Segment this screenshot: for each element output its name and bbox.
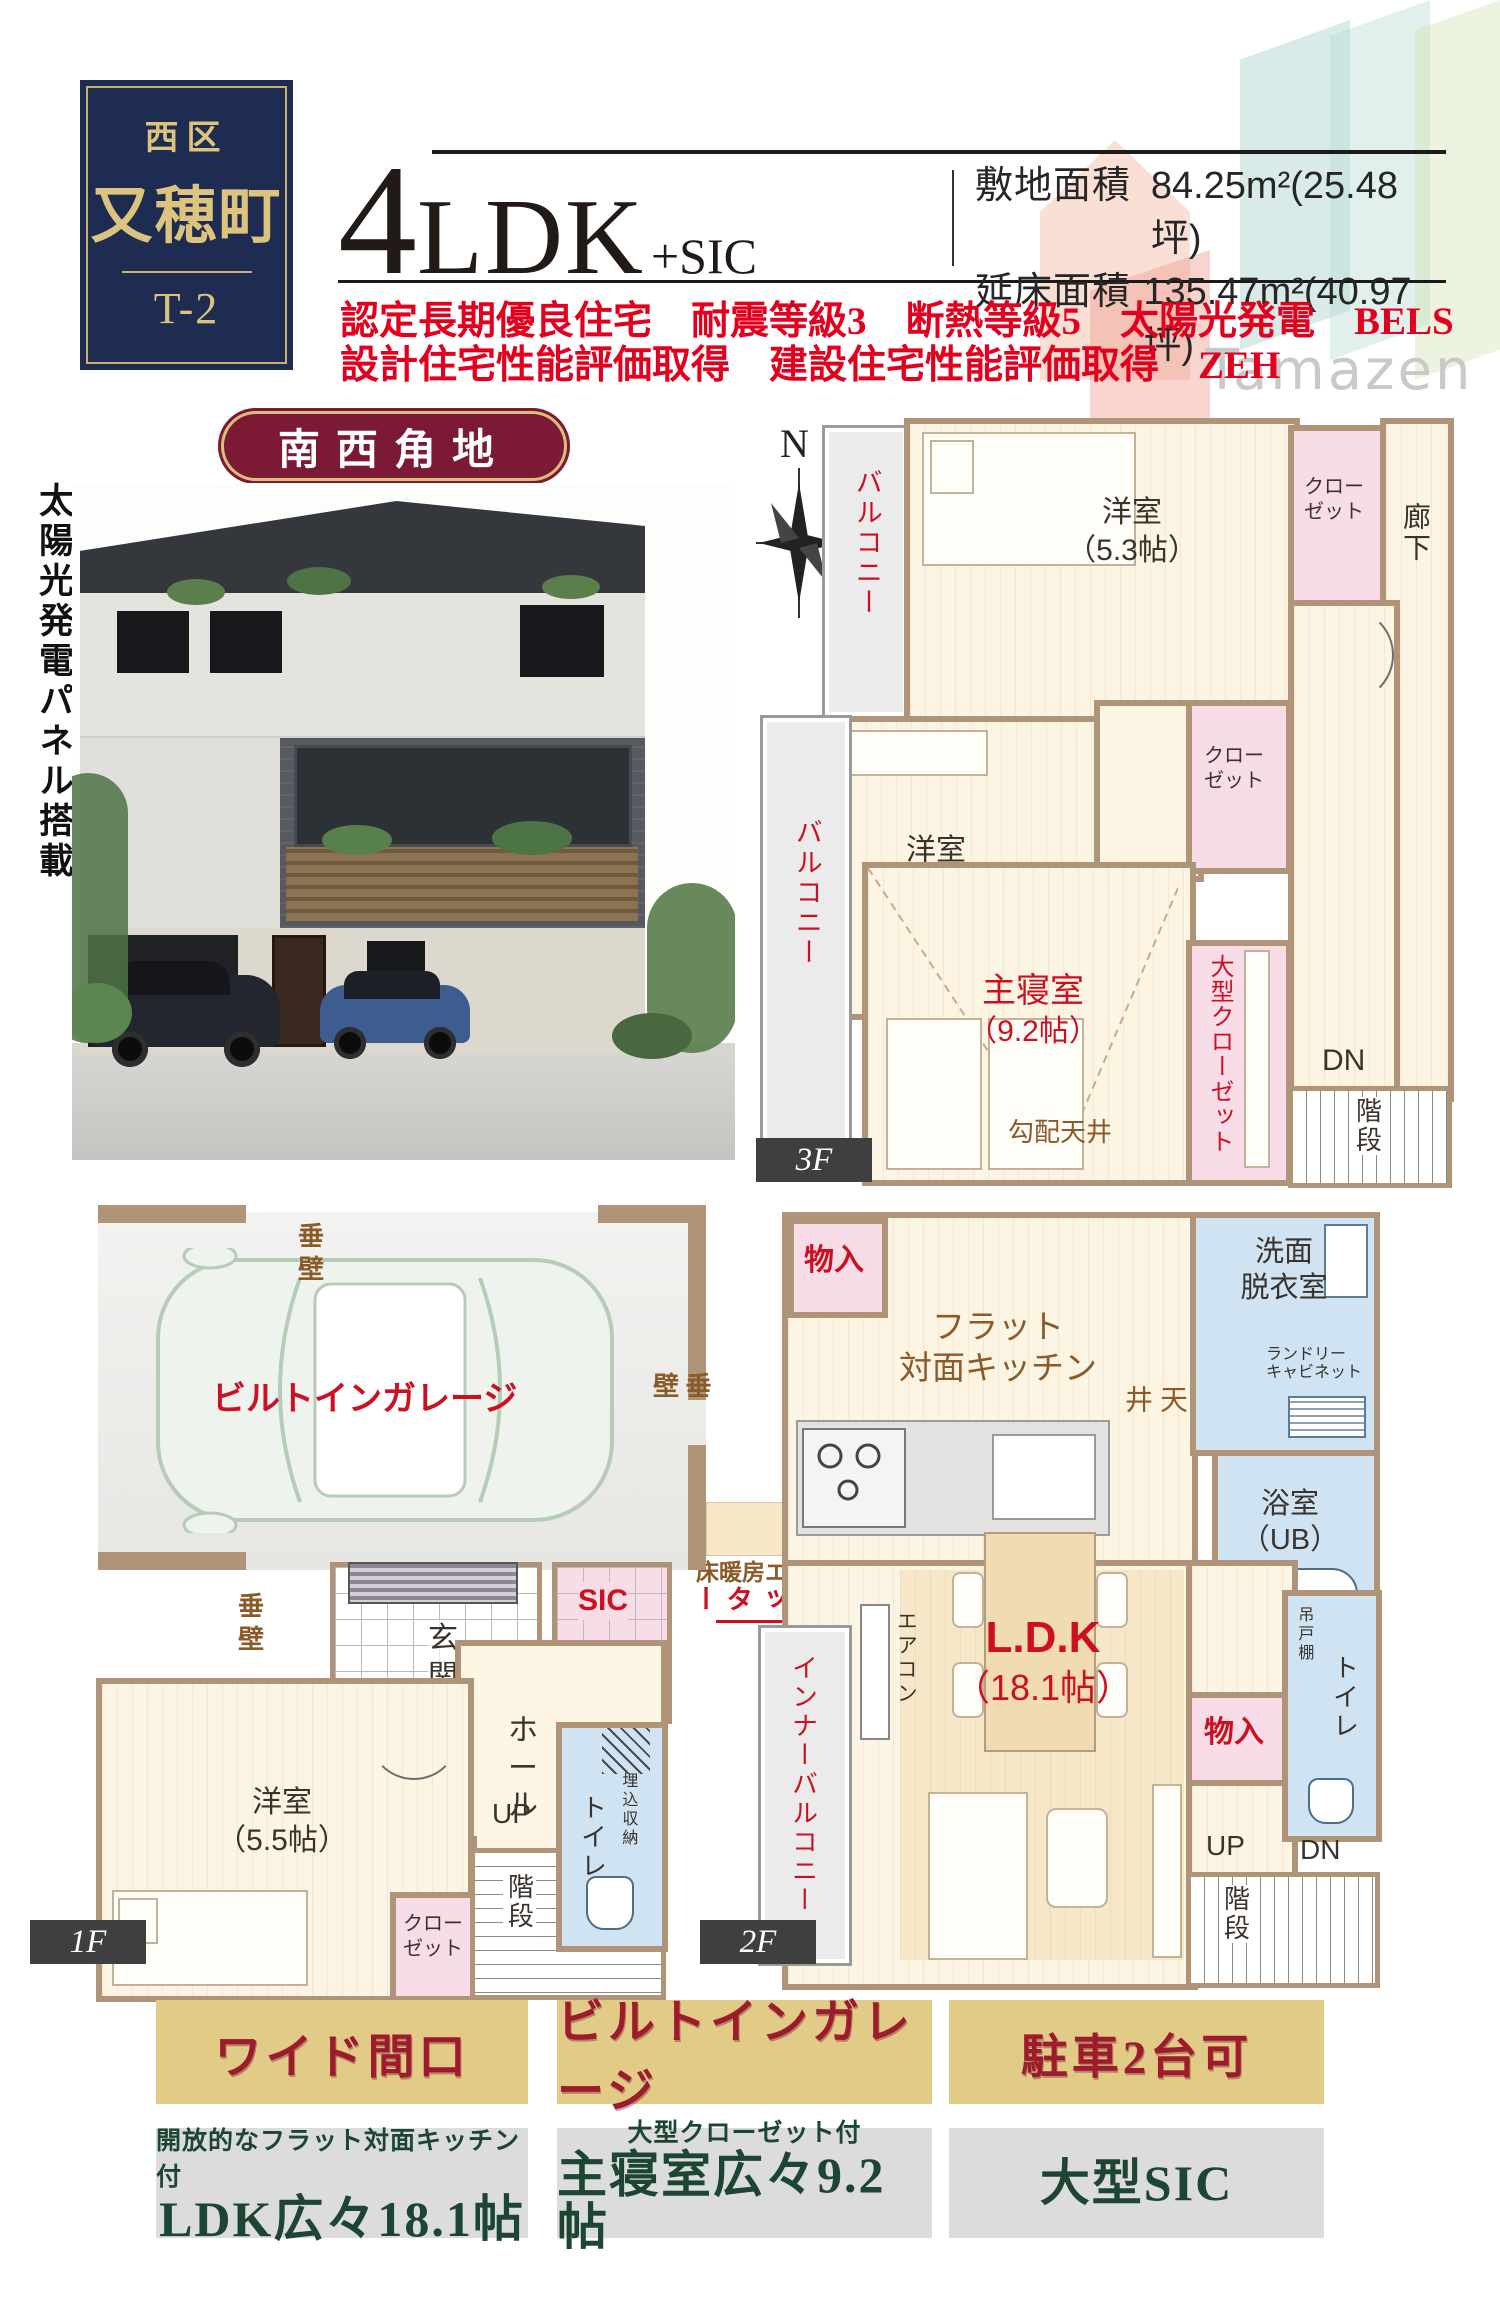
- highlight-1-main: LDK広々18.1帖: [159, 2193, 525, 2246]
- feature-badge-1: ワイド間口: [156, 2000, 528, 2104]
- f3-closet-2-label: クロー ゼット: [1200, 744, 1268, 794]
- f1-room-name: 洋室: [182, 1784, 382, 1822]
- f1-room-label: 洋室 （5.5帖）: [182, 1784, 382, 1859]
- f2-bath-l1: 浴室: [1240, 1486, 1340, 1522]
- balcony-plant-2: [492, 821, 572, 855]
- house-render: [72, 483, 735, 1160]
- f1-room-size: （5.5帖）: [182, 1822, 382, 1860]
- highlight-2-main: 主寝室広々9.2帖: [557, 2149, 932, 2254]
- f3-master-size: （9.2帖）: [928, 1013, 1138, 1051]
- floor2-tag-text: 2F: [740, 1924, 777, 1961]
- f2-kitchen-label: フラット 対面キッチン: [878, 1306, 1118, 1389]
- f1-closet-l2: ゼット: [402, 1937, 464, 1962]
- f1-built-in-l2: 収納: [619, 1810, 636, 1848]
- f3-room-5-3: 洋室 （5.3帖）: [904, 418, 1300, 728]
- f3-closet-2-l2: ゼット: [1200, 769, 1268, 794]
- attic-window-1: [117, 611, 189, 673]
- highlight-1-sub: 開放的なフラット対面キッチン付: [156, 2121, 528, 2193]
- f3-dn-label: DN: [1322, 1042, 1365, 1080]
- f2-laundry-cabinet: [1288, 1396, 1366, 1438]
- f3-big-closet: 大型クローゼット: [1186, 940, 1292, 1186]
- f1-stairs-label: 階段: [503, 1873, 536, 1931]
- f1-garage-label: ビルトインガレージ: [212, 1378, 517, 1421]
- layout-title: 4LDK+SIC: [338, 142, 757, 300]
- f1-toilet-room: トイレ 埋込収納: [556, 1722, 668, 1952]
- f3-door-arc: [1300, 608, 1394, 702]
- features-line-2: 設計住宅性能評価取得 建設住宅性能評価取得 ZEH: [340, 334, 1450, 390]
- feature-badge-3: 駐車2台可: [949, 2000, 1324, 2104]
- f2-hanging-shelf-label: 吊戸棚: [1294, 1606, 1312, 1663]
- f2-bath-l2: （UB）: [1240, 1522, 1340, 1558]
- highlight-box-3: 大型SIC: [949, 2128, 1324, 2238]
- f3-room-5-3-size: （5.3帖）: [1032, 532, 1232, 570]
- f3-stairs-label: 階段: [1351, 1097, 1384, 1155]
- f1-entry-mat: [348, 1562, 518, 1604]
- f1-wall-right: [688, 1205, 706, 1400]
- f1-up-label: UP: [492, 1796, 531, 1831]
- floor2-tag: 2F: [700, 1920, 816, 1964]
- f3-closet-1: クロー ゼット: [1288, 425, 1392, 612]
- highlight-3-main: 大型SIC: [1040, 2157, 1233, 2210]
- f2-washroom-l1: 洗面: [1214, 1234, 1354, 1270]
- f3-closet-1-l1: クロー: [1300, 475, 1368, 500]
- balcony-plant-1: [322, 825, 392, 855]
- f2-toilet-room: 吊戸棚 トイレ: [1282, 1590, 1382, 1842]
- site-area-row: 敷地面積 84.25m²(25.48坪): [975, 160, 1445, 266]
- f3-hallway-label: 廊下: [1398, 502, 1433, 564]
- f1-wall-top-left: [98, 1205, 246, 1223]
- f2-washroom-label: 洗面 脱衣室: [1214, 1234, 1354, 1307]
- f1-tarekabe-right: 垂壁: [648, 1372, 713, 1401]
- bush-right: [612, 1013, 692, 1059]
- site-area-label: 敷地面積: [975, 160, 1151, 266]
- f1-built-in-label: 埋込収納: [618, 1772, 636, 1848]
- feature-badge-2: ビルトインガレージ: [557, 2000, 932, 2104]
- f1-wall-mid-left: [98, 1552, 246, 1570]
- f2-tv-board: [1152, 1784, 1182, 1958]
- floor1-tag-text: 1F: [70, 1924, 107, 1961]
- site-area-value: 84.25m²(25.48坪): [1151, 160, 1445, 266]
- f1-toilet-icon: [586, 1876, 634, 1930]
- car-mini-wheel-1: [334, 1027, 366, 1059]
- f3-big-closet-label: 大型クローゼット: [1204, 954, 1234, 1154]
- f3-master-bedroom: 主寝室 （9.2帖） 勾配天井: [862, 862, 1196, 1186]
- f1-hatch-corner: [602, 1728, 650, 1774]
- f1-tarekabe-top: 垂壁: [298, 1220, 324, 1285]
- highlight-box-1: 開放的なフラット対面キッチン付 LDK広々18.1帖: [156, 2128, 528, 2238]
- f3-master-name: 主寝室: [928, 970, 1138, 1013]
- location-plate: 西区 又穂町 T-2: [80, 80, 293, 370]
- f2-up-label: UP: [1206, 1828, 1245, 1863]
- f3-closet-1-label: クロー ゼット: [1300, 475, 1368, 525]
- f3-room-5-3-label: 洋室 （5.3帖）: [1032, 494, 1232, 569]
- f2-sofa: [928, 1792, 1028, 1960]
- car-suv-wheel-2: [224, 1031, 260, 1067]
- f3-balcony-lower-label: バルコニー: [789, 818, 823, 968]
- f2-storage-top: 物入: [788, 1218, 888, 1318]
- f3-closet-2: クロー ゼット: [1186, 700, 1292, 874]
- car-suv-cabin: [120, 961, 230, 995]
- f1-tarekabe-bottom: 垂壁: [238, 1590, 264, 1655]
- f1-built-in-l1: 埋込: [619, 1772, 636, 1810]
- f3-stairs: 階段: [1288, 1086, 1452, 1188]
- f2-washroom-l2: 脱衣室: [1214, 1270, 1354, 1306]
- f2-stove-burners: [810, 1436, 894, 1516]
- f1-sic-label: SIC: [578, 1582, 628, 1620]
- f2-stairs: 階段: [1186, 1872, 1380, 1988]
- f2-toilet-icon: [1308, 1778, 1354, 1824]
- floor3-tag: 3F: [756, 1138, 872, 1182]
- f3-bed-pillow: [930, 440, 974, 494]
- highlight-2-sub: 大型クローゼット付: [627, 2113, 861, 2149]
- planter-green-3: [542, 575, 600, 599]
- attic-window-3: [520, 605, 604, 677]
- compass-n-label: N: [780, 420, 809, 467]
- car-mini-wheel-2: [424, 1027, 456, 1059]
- f2-storage-bottom: 物入: [1186, 1692, 1290, 1786]
- f2-sink-island: [992, 1434, 1096, 1520]
- f1-closet-l1: クロー: [402, 1912, 464, 1937]
- f2-storage-top-label: 物入: [804, 1242, 864, 1280]
- f2-laundry-l1: ランドリー: [1266, 1346, 1366, 1364]
- highlight-box-2: 大型クローゼット付 主寝室広々9.2帖: [557, 2128, 932, 2238]
- f2-kitchen-l1: フラット: [878, 1306, 1118, 1347]
- f2-ldk-name: L.D.K: [928, 1610, 1158, 1665]
- f2-aircon-unit: [860, 1604, 890, 1740]
- f2-aircon-label: エアコン: [892, 1610, 918, 1706]
- unit-label: T-2: [154, 283, 220, 334]
- car-mini-roof: [344, 971, 440, 999]
- balcony-wood-rail: [286, 847, 638, 921]
- f2-inner-balcony: インナーバルコニー: [758, 1625, 852, 1966]
- corner-lot-badge: 南西角地: [218, 408, 570, 484]
- f2-kitchen-l2: 対面キッチン: [878, 1347, 1118, 1388]
- f2-washroom: 洗面 脱衣室 ランドリー キャビネット: [1190, 1212, 1380, 1456]
- f3-balcony-upper-label: バルコニー: [849, 468, 883, 618]
- f2-bath-label: 浴室 （UB）: [1240, 1486, 1340, 1559]
- floor1-tag: 1F: [30, 1920, 146, 1964]
- district-label: 西区: [145, 110, 229, 159]
- f2-ldk-size: （18.1帖）: [928, 1665, 1158, 1710]
- f2-toilet-label: トイレ: [1328, 1654, 1361, 1741]
- planter-green-1: [167, 579, 225, 605]
- f3-sloped-ceiling-label: 勾配天井: [1008, 1116, 1112, 1149]
- front-door: [272, 935, 326, 1047]
- f1-closet-label: クロー ゼット: [402, 1912, 464, 1962]
- f2-storage-bottom-label: 物入: [1204, 1714, 1264, 1752]
- f3-balcony-upper: バルコニー: [822, 425, 910, 719]
- f3-balcony-lower: バルコニー: [760, 715, 852, 1149]
- layout-ldk: LDK: [417, 184, 645, 292]
- layout-suffix: +SIC: [651, 231, 757, 281]
- f3-big-closet-shelf: [1244, 950, 1270, 1168]
- flyer-page: Tamazen 西区 又穂町 T-2 4LDK+SIC 敷地面積 84.25m²…: [0, 0, 1500, 2300]
- f2-laundry-l2: キャビネット: [1266, 1364, 1366, 1382]
- floor3-tag-text: 3F: [796, 1142, 833, 1179]
- plate-divider: [122, 271, 252, 273]
- area-divider: [952, 170, 954, 266]
- f2-laundry-label: ランドリー キャビネット: [1266, 1346, 1366, 1383]
- f2-stairs-label: 階段: [1219, 1885, 1252, 1943]
- f2-low-table: [1046, 1808, 1108, 1908]
- f1-wall-right-lower: [688, 1445, 706, 1570]
- f3-closet-1-l2: ゼット: [1300, 500, 1368, 525]
- layout-count: 4: [338, 142, 417, 300]
- planter-green-2: [287, 567, 351, 595]
- f3-master-label: 主寝室 （9.2帖）: [928, 970, 1138, 1050]
- f2-ldk-label: L.D.K （18.1帖）: [928, 1610, 1158, 1710]
- f2-dn-label: DN: [1300, 1832, 1340, 1867]
- f3-closet-2-l1: クロー: [1200, 744, 1268, 769]
- f2-inner-balcony-label: インナーバルコニー: [787, 1654, 820, 1915]
- attic-window-2: [210, 611, 282, 673]
- road: [72, 1043, 735, 1160]
- f3-room-5-3-name: 洋室: [1032, 494, 1232, 532]
- f1-room-door-arc: [368, 1688, 460, 1780]
- f1-toilet-label: トイレ: [576, 1794, 609, 1881]
- town-label: 又穂町: [90, 165, 282, 255]
